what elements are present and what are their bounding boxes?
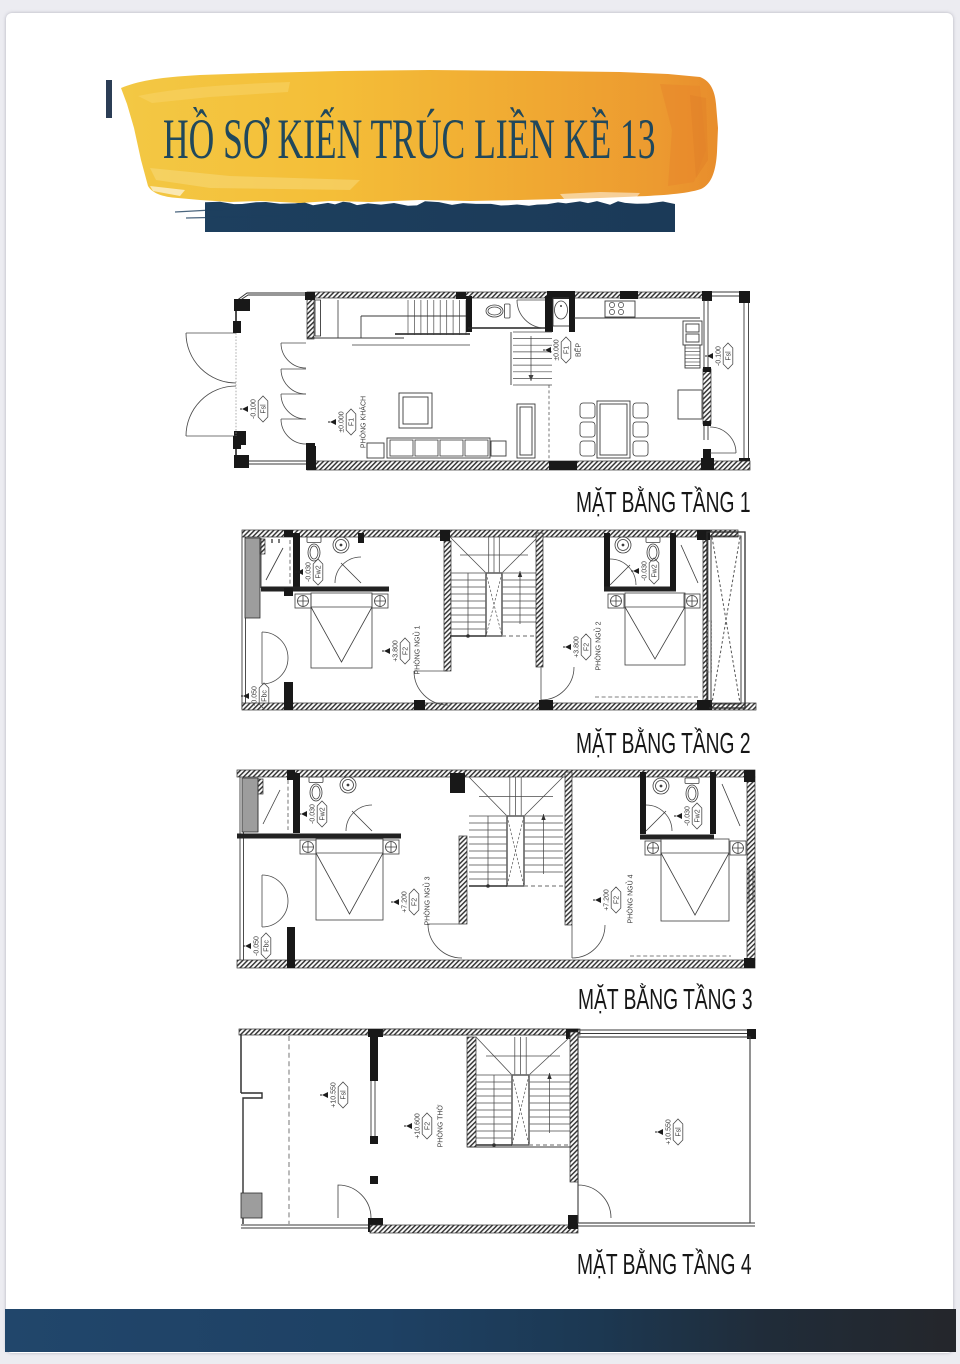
svg-text:Fsl: Fsl	[261, 404, 268, 414]
svg-text:+7.200: +7.200	[603, 889, 610, 911]
svg-text:Fbc: Fbc	[262, 690, 269, 702]
svg-text:+10.600: +10.600	[414, 1113, 421, 1139]
svg-text:F2: F2	[425, 1122, 432, 1130]
svg-text:F2: F2	[584, 643, 591, 651]
svg-text:-0.030: -0.030	[305, 562, 312, 582]
svg-text:Fsl: Fsl	[341, 1090, 348, 1100]
svg-text:+3.800: +3.800	[392, 640, 399, 662]
svg-text:PHÒNG THỜ: PHÒNG THỜ	[436, 1105, 445, 1148]
svg-text:Fbc: Fbc	[264, 940, 271, 952]
svg-text:±0.000: ±0.000	[553, 339, 560, 360]
svg-text:F2: F2	[412, 898, 419, 906]
svg-text:±0.000: ±0.000	[338, 411, 345, 432]
svg-text:-0.100: -0.100	[715, 346, 722, 366]
svg-text:BẾP: BẾP	[573, 343, 583, 357]
svg-text:PHÒNG NGỦ 2: PHÒNG NGỦ 2	[594, 621, 603, 670]
svg-text:Fw2: Fw2	[695, 809, 702, 822]
svg-text:-0.050: -0.050	[253, 936, 260, 956]
svg-text:F1: F1	[349, 418, 356, 426]
svg-text:-0.050: -0.050	[251, 686, 258, 706]
svg-text:PHÒNG KHÁCH: PHÒNG KHÁCH	[359, 396, 368, 448]
svg-text:Fw2: Fw2	[652, 564, 659, 577]
svg-text:+7.200: +7.200	[401, 891, 408, 913]
svg-text:Fsl: Fsl	[726, 351, 733, 361]
svg-text:-0.030: -0.030	[641, 561, 648, 581]
svg-text:Fw2: Fw2	[316, 565, 323, 578]
svg-text:-0.100: -0.100	[250, 399, 257, 419]
svg-text:Fsl: Fsl	[676, 1127, 683, 1137]
svg-text:-0.030: -0.030	[684, 806, 691, 826]
svg-text:-0.030: -0.030	[309, 804, 316, 824]
svg-text:+3.800: +3.800	[573, 636, 580, 658]
svg-text:PHÒNG NGỦ 4: PHÒNG NGỦ 4	[626, 874, 635, 923]
svg-text:+10.550: +10.550	[330, 1082, 337, 1108]
svg-text:+10.550: +10.550	[665, 1119, 672, 1145]
svg-text:Fw2: Fw2	[320, 807, 327, 820]
svg-text:PHÒNG NGỦ 1: PHÒNG NGỦ 1	[413, 625, 422, 674]
svg-text:F1: F1	[564, 346, 571, 354]
svg-text:F2: F2	[614, 896, 621, 904]
svg-text:PHÒNG NGỦ 3: PHÒNG NGỦ 3	[423, 876, 432, 925]
svg-text:F2: F2	[403, 647, 410, 655]
